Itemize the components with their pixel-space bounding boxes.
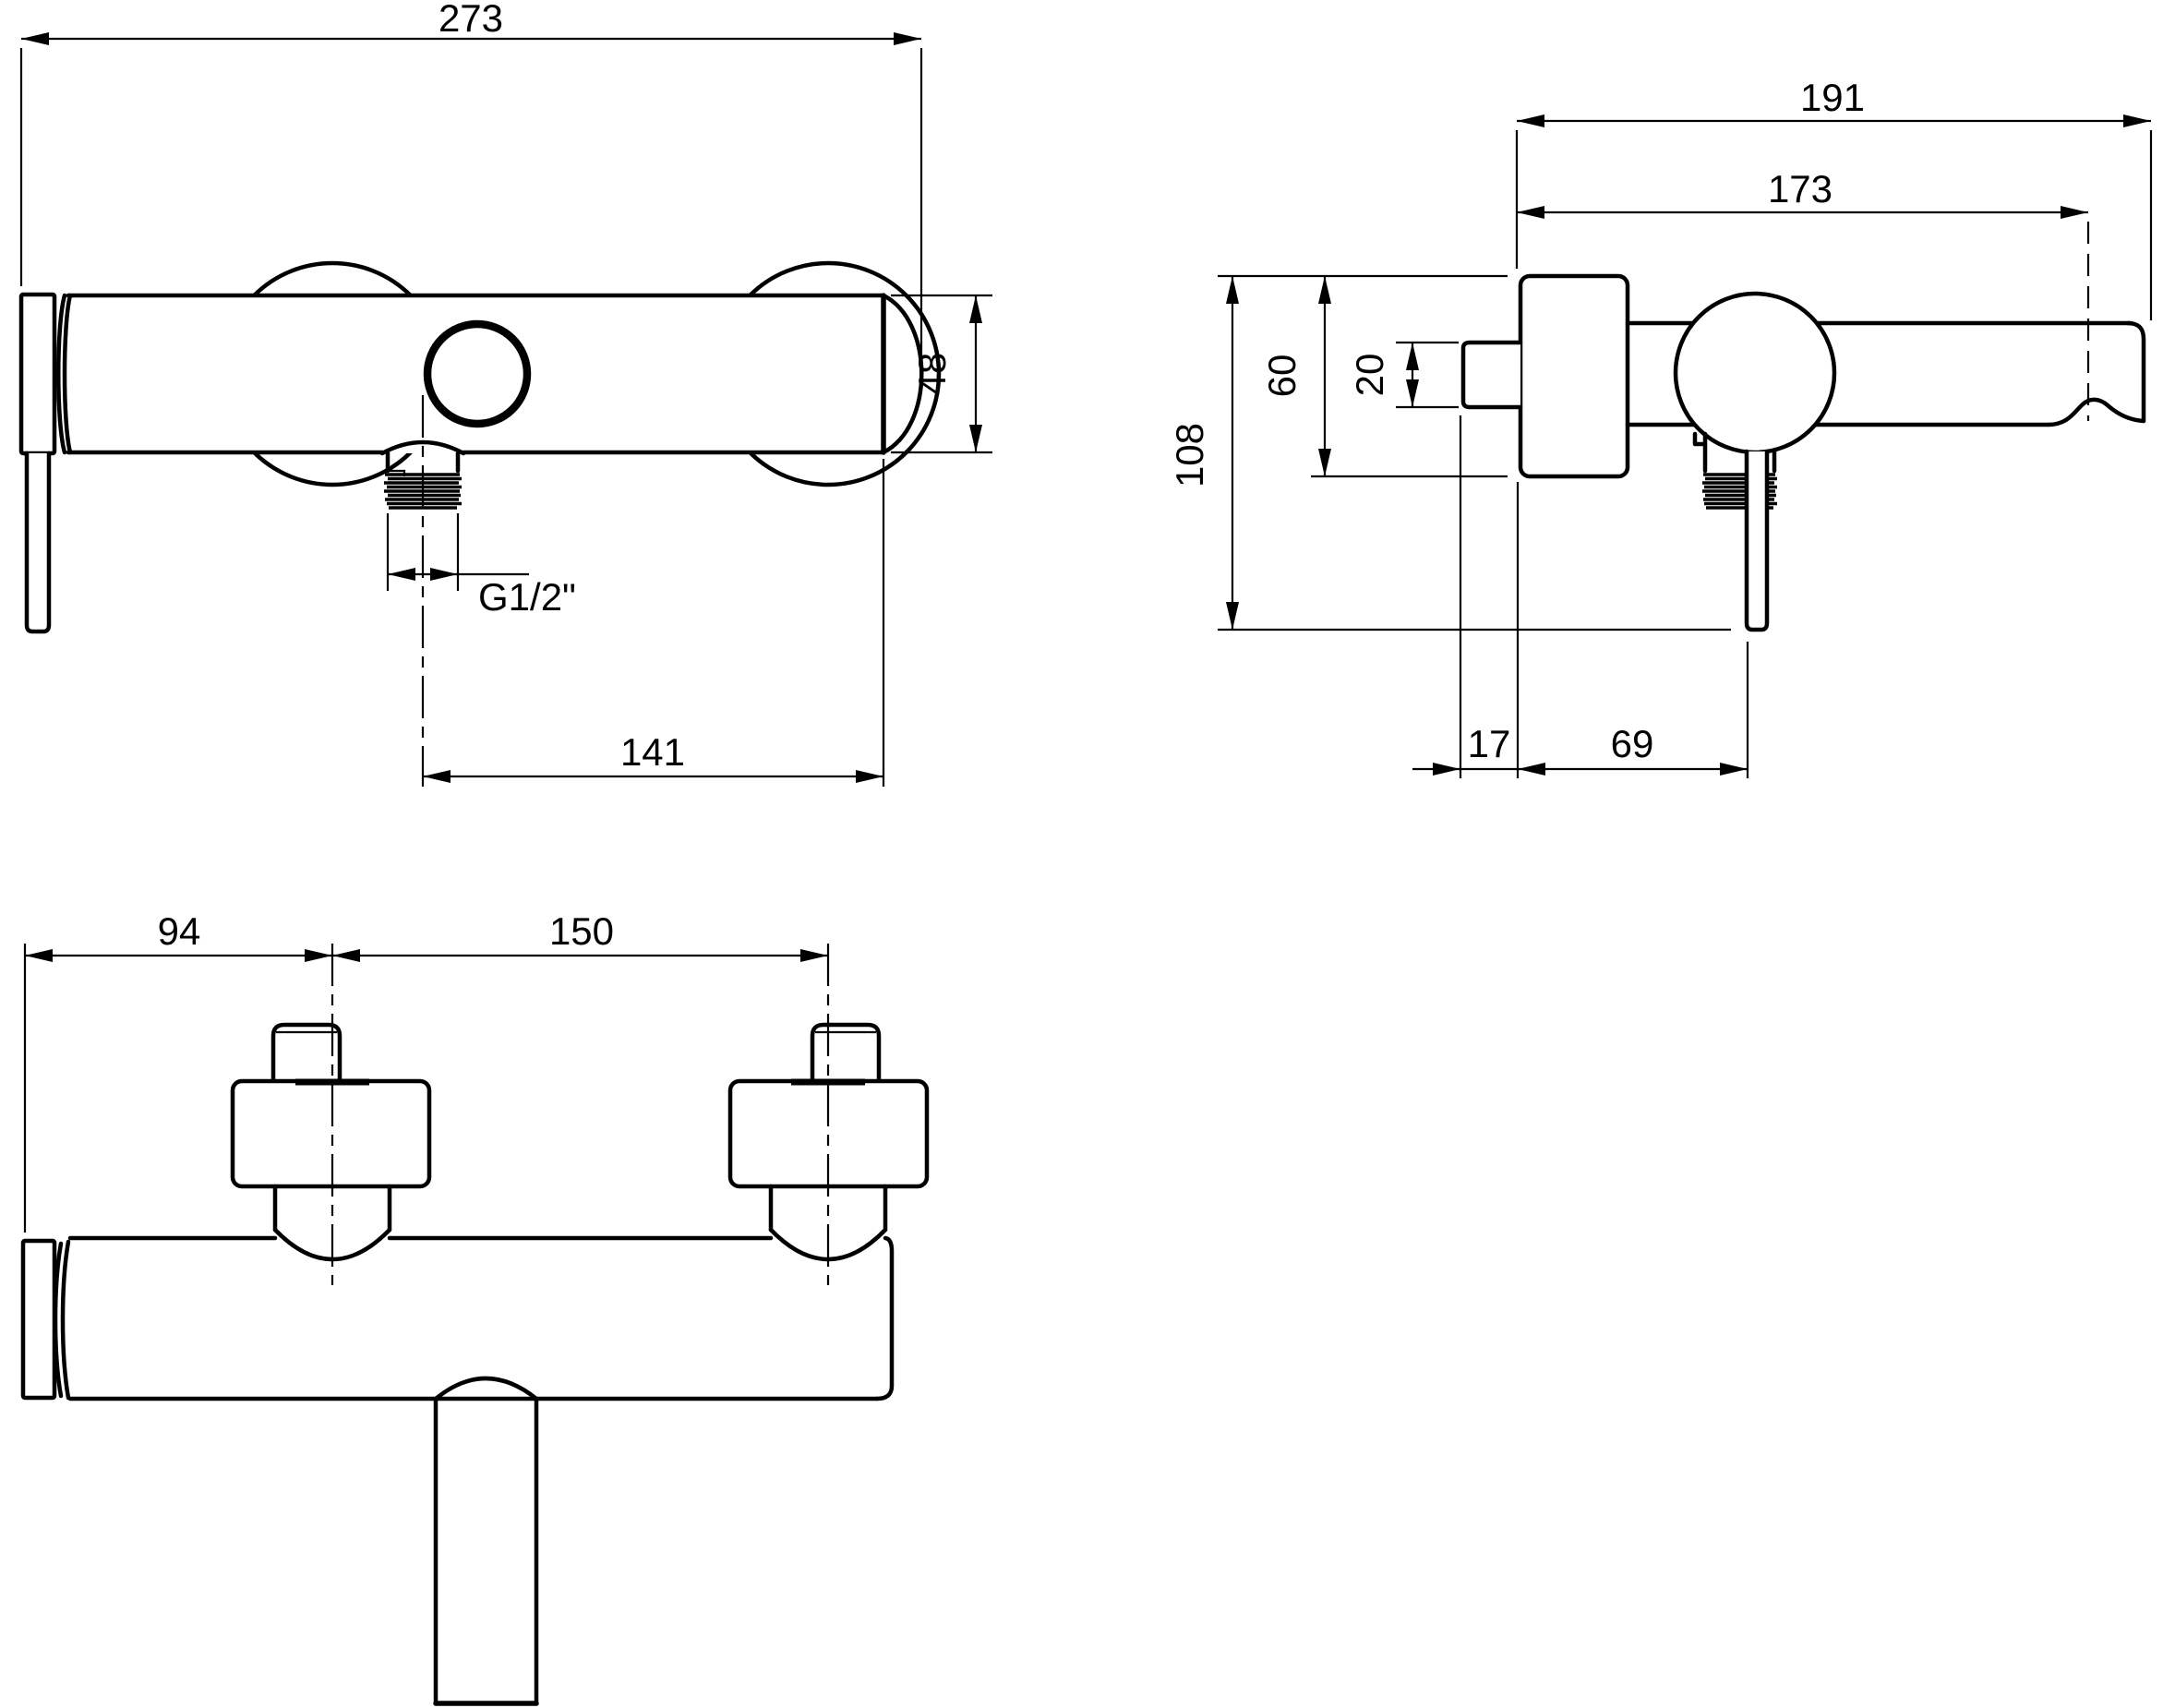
spout-shoulder — [436, 1378, 536, 1399]
dim-body-height-arrow-bottom — [969, 425, 982, 452]
dim-pipe-wall-offset-arrow — [1433, 763, 1460, 776]
supply-pipe-stub — [1463, 343, 1520, 407]
dim-overall-height: 108 — [1168, 276, 1239, 630]
dim-overall-width-arrow-right — [894, 32, 921, 45]
supply-pipe-right — [812, 1025, 879, 1081]
dim-overall-width: 273 — [21, 0, 921, 45]
dim-outlet-thread-label: G1/2" — [478, 575, 576, 619]
dim-pipe-wall-offset-label: 17 — [1468, 722, 1511, 765]
handle-lever-rod — [27, 453, 49, 631]
dim-supply-pipe-diameter-label: 20 — [1348, 354, 1391, 397]
dim-outlet-thread: G1/2" — [388, 568, 576, 619]
dim-overall-depth-arrow-left — [1517, 114, 1544, 127]
side-extension-lines — [1218, 130, 2151, 778]
dim-depth-to-spout-axis: 173 — [1517, 167, 2088, 219]
flange-block-left — [233, 1081, 429, 1186]
dim-overall-depth-label: 191 — [1800, 76, 1865, 119]
dim-supply-pipe-diameter-arrow-bottom — [1406, 379, 1419, 407]
spout-pipe-sides — [436, 1399, 536, 1703]
dim-flange-height-label: 60 — [1260, 355, 1304, 398]
supply-pipe-left — [273, 1025, 340, 1081]
dim-flange-height-arrow-top — [1318, 276, 1331, 304]
side-lever-rod — [1747, 451, 1767, 630]
top-body-right-edge — [877, 1238, 892, 1399]
dim-end-to-first-leg-arrow-right — [305, 949, 332, 962]
dim-leg-spacing-label: 150 — [549, 909, 614, 953]
dim-depth-to-spout-axis-arrow-right — [2061, 206, 2088, 219]
dim-pipe-wall-offset: 17 — [1412, 722, 1518, 776]
dim-body-height-label: 48 — [910, 353, 954, 396]
spout-wave-cut — [2049, 400, 2144, 425]
dim-outlet-to-right-end: 141 — [423, 730, 883, 783]
dim-overall-width-label: 273 — [439, 0, 503, 40]
technical-drawing-page: 27348141G1/2"1911731086020176994150 — [0, 0, 2163, 1708]
drawing-canvas: 27348141G1/2"1911731086020176994150 — [0, 0, 2163, 1708]
dim-wall-to-handle-axis-label: 69 — [1611, 722, 1654, 765]
wall-plate-block — [1520, 276, 1628, 476]
dim-end-to-first-leg-label: 94 — [158, 909, 201, 953]
front-view — [21, 48, 992, 787]
top-body-left-end-cap — [55, 1242, 68, 1398]
dim-outlet-thread-arrow-right — [430, 568, 458, 581]
dim-flange-height-arrow-bottom — [1318, 449, 1331, 476]
spout-end-edge — [2128, 323, 2144, 421]
dim-end-to-first-leg: 94 — [25, 909, 332, 962]
dim-body-height-arrow-top — [969, 295, 982, 323]
mounting-leg-left — [233, 1025, 429, 1259]
dim-overall-height-label: 108 — [1168, 423, 1211, 487]
dim-leg-spacing-arrow-left — [332, 949, 360, 962]
dim-overall-depth: 191 — [1517, 76, 2151, 127]
top-view — [23, 944, 927, 1703]
dim-depth-to-spout-axis-arrow-left — [1517, 206, 1544, 219]
dim-wall-to-handle-axis-arrow-right — [1720, 763, 1748, 776]
dim-outlet-to-right-end-arrow-right — [856, 770, 883, 783]
dim-outlet-to-right-end-label: 141 — [620, 730, 685, 774]
dim-flange-height: 60 — [1260, 276, 1331, 476]
dim-overall-height-arrow-top — [1226, 276, 1239, 304]
dim-overall-height-arrow-bottom — [1226, 602, 1239, 630]
dim-supply-pipe-diameter: 20 — [1348, 343, 1419, 407]
top-handle-plate — [23, 1241, 54, 1398]
dim-leg-spacing: 150 — [332, 909, 828, 962]
dim-end-to-first-leg-arrow-left — [25, 949, 53, 962]
dimension-annotations: 27348141G1/2"1911731086020176994150 — [21, 0, 2151, 962]
dim-overall-width-arrow-left — [21, 32, 49, 45]
dim-supply-pipe-diameter-arrow-top — [1406, 343, 1419, 370]
dim-outlet-thread-arrow-left — [388, 568, 415, 581]
dim-wall-to-handle-axis: 69 — [1518, 722, 1748, 776]
mixer-body-mask — [62, 295, 922, 452]
dim-leg-spacing-arrow-right — [800, 949, 828, 962]
side-view — [1218, 130, 2151, 778]
dim-outlet-to-right-end-arrow-left — [423, 770, 451, 783]
dim-wall-to-handle-axis-arrow-left — [1518, 763, 1545, 776]
dim-overall-depth-arrow-right — [2123, 114, 2151, 127]
valve-body-circle — [1676, 294, 1834, 452]
dim-depth-to-spout-axis-label: 173 — [1768, 167, 1833, 210]
handle-plate — [21, 295, 54, 453]
